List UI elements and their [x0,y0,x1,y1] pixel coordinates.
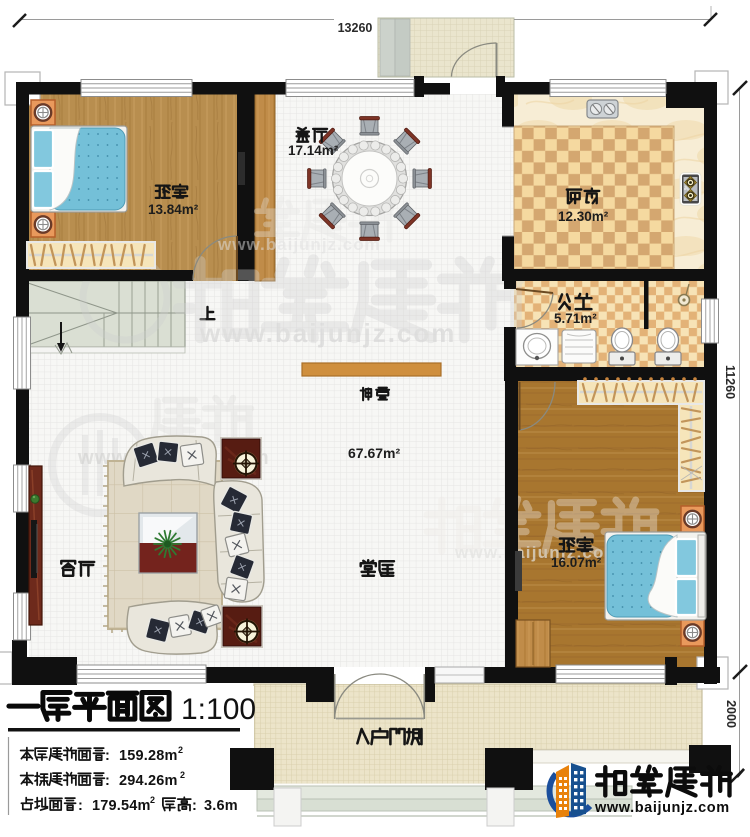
svg-text:2000: 2000 [724,700,738,728]
svg-text:13.84m²: 13.84m² [148,202,199,217]
svg-text:www.baijunjz.com: www.baijunjz.com [217,235,381,254]
svg-text:16.07m²: 16.07m² [551,555,602,570]
svg-text:www.baijunjz.com: www.baijunjz.com [199,318,456,348]
svg-text:67.67m²: 67.67m² [348,445,400,461]
svg-text:179.54m: 179.54m [92,798,151,814]
svg-text::: : [78,798,83,814]
svg-text:3.6m: 3.6m [204,798,238,814]
svg-text:2: 2 [178,745,183,755]
svg-text::: : [105,748,110,764]
svg-text::: : [105,773,110,789]
svg-text:13260: 13260 [338,21,373,35]
svg-text:12.30m²: 12.30m² [558,209,609,224]
svg-text:159.28m: 159.28m [119,748,178,764]
svg-text::: : [192,798,197,814]
svg-text:1:100: 1:100 [181,693,256,726]
svg-text:11260: 11260 [723,365,737,399]
svg-text:2: 2 [150,795,155,805]
svg-text:5.71m²: 5.71m² [554,311,597,326]
svg-text:2: 2 [180,770,185,780]
svg-text:www.baijunjz.com: www.baijunjz.com [594,800,730,816]
svg-text:17.14m²: 17.14m² [288,143,339,158]
svg-text:294.26m: 294.26m [119,773,178,789]
